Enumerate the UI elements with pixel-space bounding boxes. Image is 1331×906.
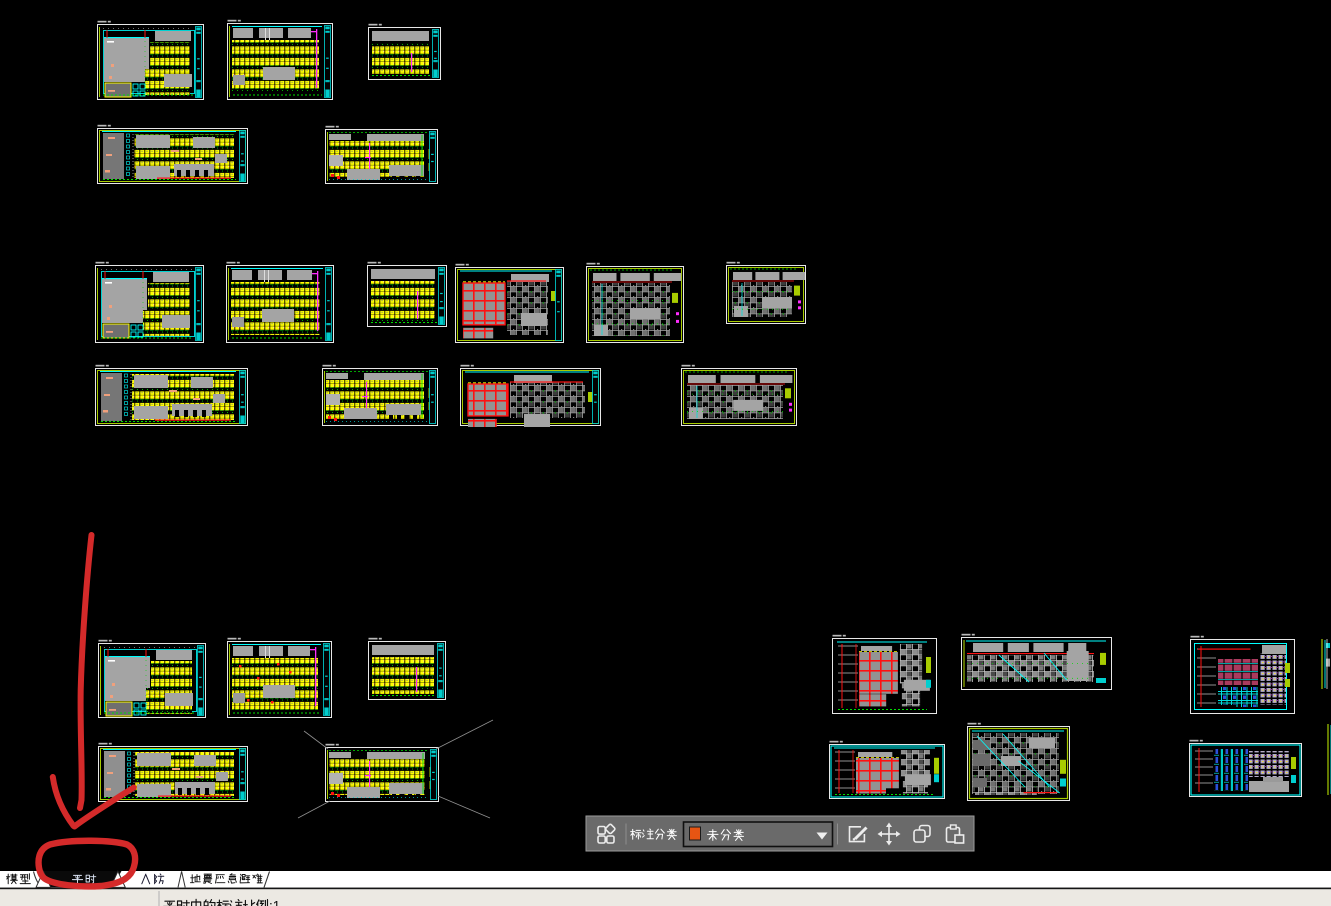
svg-text::1: :1: [269, 899, 280, 906]
